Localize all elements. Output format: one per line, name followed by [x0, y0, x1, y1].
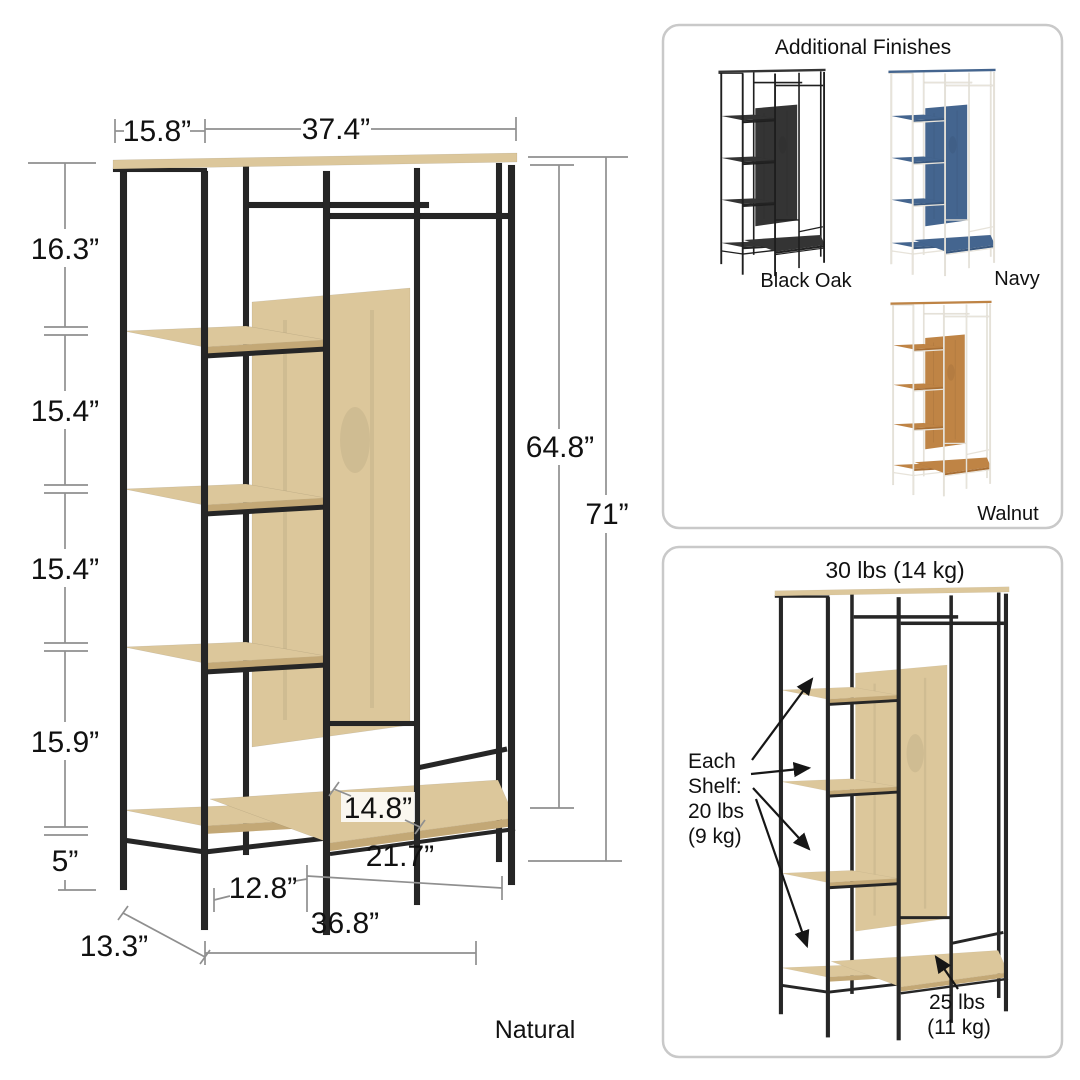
dim-lines-left-chain	[28, 163, 96, 890]
dim-label-overall-depth: 13.3”	[80, 930, 148, 963]
shelf-capacity-line-4: (9 kg)	[688, 825, 742, 848]
dim-label-gap-4: 15.9”	[31, 726, 99, 759]
bottom-shelf-capacity-line-2: (11 kg)	[927, 1016, 991, 1039]
finishes-panel-title: Additional Finishes	[775, 36, 951, 59]
dim-label-overall-width: 36.8”	[311, 907, 379, 940]
product-dimension-infographic: 15.8” 37.4” 16.3” 15.4” 15.4” 1	[0, 0, 1080, 1080]
finish-label-navy: Navy	[994, 268, 1040, 290]
finish-label-black-oak: Black Oak	[760, 270, 852, 292]
main-wardrobe-illustration	[113, 153, 517, 935]
shelf-capacity-line-2: Shelf:	[688, 775, 742, 798]
dim-label-shelf-depth: 14.8”	[344, 792, 412, 825]
weight-capacity-panel: 30 lbs (14 kg) Each Shelf: 20 lbs (9 kg)…	[663, 547, 1062, 1057]
bottom-shelf-capacity-line-1: 25 lbs	[929, 991, 985, 1014]
finish-name-label: Natural	[495, 1016, 576, 1044]
dim-label-interior-height: 64.8”	[526, 431, 594, 464]
shelf-capacity-line-1: Each	[688, 750, 736, 773]
shelf-capacity-line-3: 20 lbs	[688, 800, 744, 823]
dim-label-gap-1: 16.3”	[31, 233, 99, 266]
top-rail-capacity-label: 30 lbs (14 kg)	[825, 557, 964, 583]
finish-label-walnut: Walnut	[977, 503, 1039, 525]
dim-label-gap-2: 15.4”	[31, 395, 99, 428]
dim-label-tower-bottom-width: 12.8”	[229, 872, 297, 905]
additional-finishes-panel: Additional Finishes Black Oak Navy Walnu…	[663, 25, 1062, 528]
infographic-svg: 15.8” 37.4” 16.3” 15.4” 15.4” 1	[0, 0, 1080, 1080]
dim-label-hanging-width: 37.4”	[302, 113, 370, 146]
dim-label-gap-5: 5”	[52, 845, 79, 878]
dim-label-gap-3: 15.4”	[31, 553, 99, 586]
dim-label-overall-height: 71”	[585, 498, 628, 531]
dim-label-tower-width: 15.8”	[123, 115, 191, 148]
dim-label-hanging-bottom-width: 21.7”	[366, 840, 434, 873]
